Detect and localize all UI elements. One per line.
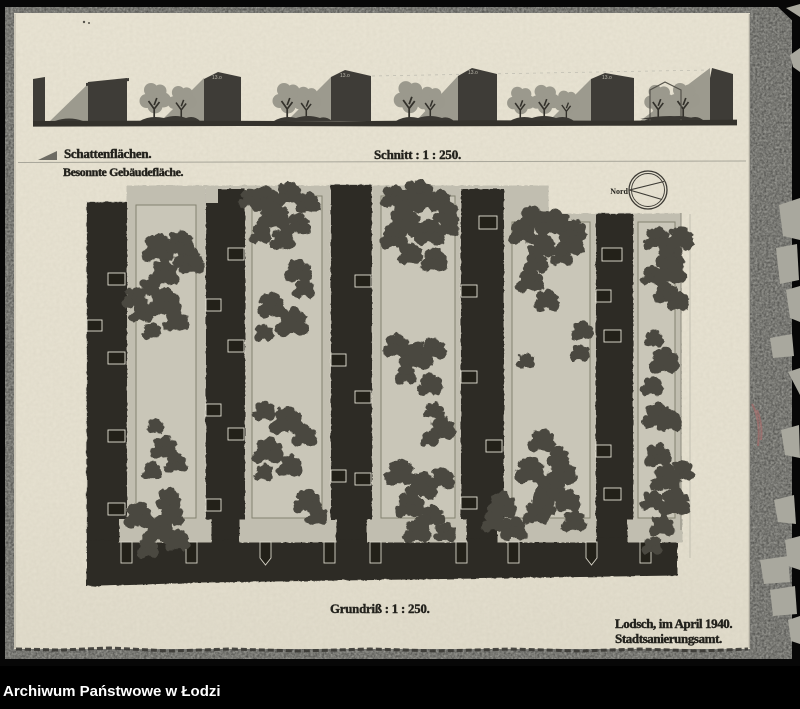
svg-text:13.o: 13.o <box>340 73 350 79</box>
svg-text:Besonnte Gebäudefläche.: Besonnte Gebäudefläche. <box>63 165 184 179</box>
svg-text:Lodsch, im April 1940.: Lodsch, im April 1940. <box>615 616 732 631</box>
svg-text:Stadtsanierungsamt.: Stadtsanierungsamt. <box>615 631 722 646</box>
svg-text:Archiwum Państwowe w Łodzi: Archiwum Państwowe w Łodzi <box>3 683 221 700</box>
svg-text:13.o: 13.o <box>602 75 612 81</box>
svg-text:13.o: 13.o <box>212 75 222 81</box>
svg-text:Schnitt : 1 : 250.: Schnitt : 1 : 250. <box>374 147 461 162</box>
svg-text:Schattenflächen.: Schattenflächen. <box>64 146 151 161</box>
svg-text:Grundriß : 1 : 250.: Grundriß : 1 : 250. <box>330 602 430 616</box>
svg-text:Nord: Nord <box>610 187 628 196</box>
svg-text:13.o: 13.o <box>468 70 478 76</box>
